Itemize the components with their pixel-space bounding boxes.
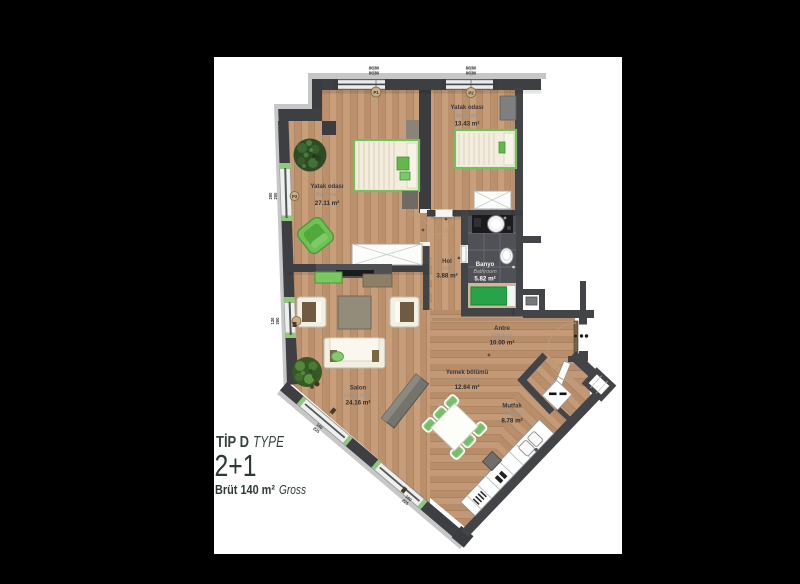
svg-text:Living room: Living room [344, 393, 372, 399]
svg-text:27.11 m²: 27.11 m² [315, 200, 339, 207]
svg-text:Hall: Hall [442, 266, 452, 272]
svg-text:Bathroom: Bathroom [473, 269, 497, 275]
svg-text:13.43 m²: 13.43 m² [455, 121, 480, 128]
svg-text:Entrance: Entrance [491, 333, 513, 339]
svg-text:Kitchen: Kitchen [503, 411, 521, 417]
svg-text:Banyo: Banyo [476, 261, 495, 268]
svg-text:Hol: Hol [442, 259, 452, 265]
svg-text:80|80: 80|80 [466, 71, 477, 76]
svg-text:P1: P1 [373, 90, 379, 95]
svg-text:Yatak odası: Yatak odası [450, 105, 483, 111]
svg-text:10.00 m²: 10.00 m² [490, 340, 515, 347]
svg-text:Yatak odası: Yatak odası [310, 184, 343, 190]
svg-text:200: 200 [275, 317, 280, 325]
svg-text:3.88 m²: 3.88 m² [436, 273, 457, 280]
svg-text:5.82 m²: 5.82 m² [474, 276, 495, 283]
svg-text:2+1: 2+1 [215, 448, 257, 483]
svg-text:8.78 m²: 8.78 m² [501, 418, 522, 425]
svg-text:P3: P3 [292, 194, 298, 199]
svg-text:Mutfak: Mutfak [502, 404, 522, 410]
svg-text:Gross: Gross [279, 482, 306, 497]
svg-text:Bedroom: Bedroom [456, 113, 478, 119]
svg-text:P2: P2 [468, 91, 474, 96]
svg-text:24.16 m²: 24.16 m² [346, 400, 371, 407]
svg-text:Brüt 140 m²: Brüt 140 m² [215, 482, 276, 497]
svg-text:200: 200 [273, 192, 278, 200]
svg-text:Yemek bölümü: Yemek bölümü [446, 370, 489, 376]
svg-text:Salon: Salon [350, 386, 367, 392]
svg-text:Bedroom: Bedroom [316, 192, 338, 198]
svg-text:12.64 m²: 12.64 m² [455, 384, 480, 391]
svg-text:Antre: Antre [494, 326, 510, 332]
svg-text:TYPE: TYPE [253, 434, 285, 451]
svg-text:80|80: 80|80 [369, 71, 380, 76]
svg-text:Dining Hall: Dining Hall [454, 378, 481, 384]
